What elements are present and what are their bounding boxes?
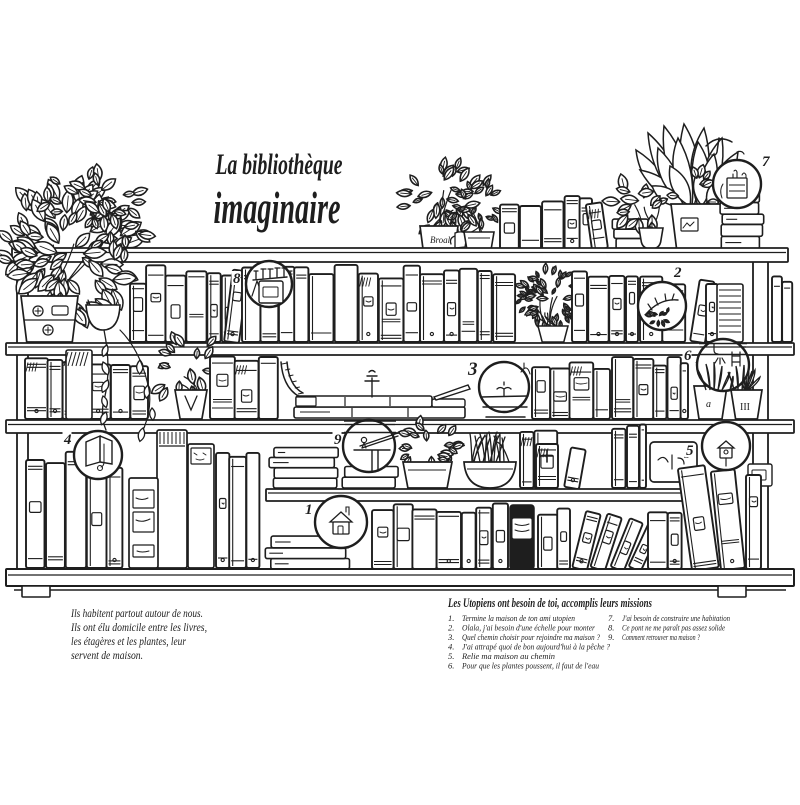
svg-text:J'ai besoin de construire une: J'ai besoin de construire une habitation bbox=[622, 613, 730, 623]
svg-text:7.: 7. bbox=[608, 613, 614, 623]
svg-text:9: 9 bbox=[334, 432, 342, 448]
svg-text:Termine la maison de ton ami u: Termine la maison de ton ami utopien bbox=[462, 613, 575, 623]
svg-text:les étagères et les plantes, l: les étagères et les plantes, leur bbox=[71, 636, 186, 648]
svg-text:8: 8 bbox=[233, 271, 241, 287]
svg-text:servent de maison.: servent de maison. bbox=[71, 650, 143, 662]
svg-text:Broal: Broal bbox=[430, 235, 451, 245]
svg-text:Comment retrouver ma maison ?: Comment retrouver ma maison ? bbox=[622, 632, 701, 642]
svg-text:J'ai attrapé quoi de bon aujou: J'ai attrapé quoi de bon aujourd'hui à l… bbox=[462, 642, 611, 652]
svg-text:7: 7 bbox=[762, 154, 770, 170]
svg-text:Olala, j'ai besoin d'une échel: Olala, j'ai besoin d'une échelle pour mo… bbox=[462, 623, 596, 633]
svg-text:2.: 2. bbox=[448, 623, 454, 633]
svg-text:III: III bbox=[740, 402, 750, 413]
svg-text:6.: 6. bbox=[448, 661, 454, 671]
svg-text:2: 2 bbox=[673, 265, 682, 281]
svg-text:Ils ont élu domicile entre les: Ils ont élu domicile entre les livres, bbox=[70, 622, 207, 634]
svg-text:5: 5 bbox=[686, 443, 694, 459]
svg-text:Ils habitent partout autour de: Ils habitent partout autour de nous. bbox=[70, 608, 203, 620]
svg-text:Les Utopiens ont besoin de toi: Les Utopiens ont besoin de toi, accompli… bbox=[447, 596, 652, 610]
svg-text:4.: 4. bbox=[448, 642, 454, 652]
svg-text:9.: 9. bbox=[608, 632, 614, 642]
svg-text:1: 1 bbox=[305, 502, 313, 518]
svg-text:4: 4 bbox=[63, 432, 72, 448]
svg-text:a: a bbox=[706, 399, 711, 410]
svg-text:Ce pont ne me paraît pas assez: Ce pont ne me paraît pas assez solide bbox=[622, 623, 725, 633]
svg-text:Relie ma maison au chemin: Relie ma maison au chemin bbox=[461, 651, 555, 661]
svg-text:imaginaire: imaginaire bbox=[214, 182, 341, 233]
svg-text:1.: 1. bbox=[448, 613, 454, 623]
svg-text:6: 6 bbox=[684, 348, 692, 364]
svg-text:3.: 3. bbox=[447, 632, 454, 642]
svg-text:5.: 5. bbox=[448, 651, 454, 661]
svg-text:La bibliothèque: La bibliothèque bbox=[215, 148, 343, 181]
svg-text:Pour que les plantes poussent,: Pour que les plantes poussent, il faut d… bbox=[461, 661, 599, 671]
svg-text:8.: 8. bbox=[608, 623, 614, 633]
svg-text:3: 3 bbox=[467, 359, 478, 380]
svg-text:Quel chemin choisir pour rejoi: Quel chemin choisir pour rejoindre ma ma… bbox=[462, 632, 601, 642]
